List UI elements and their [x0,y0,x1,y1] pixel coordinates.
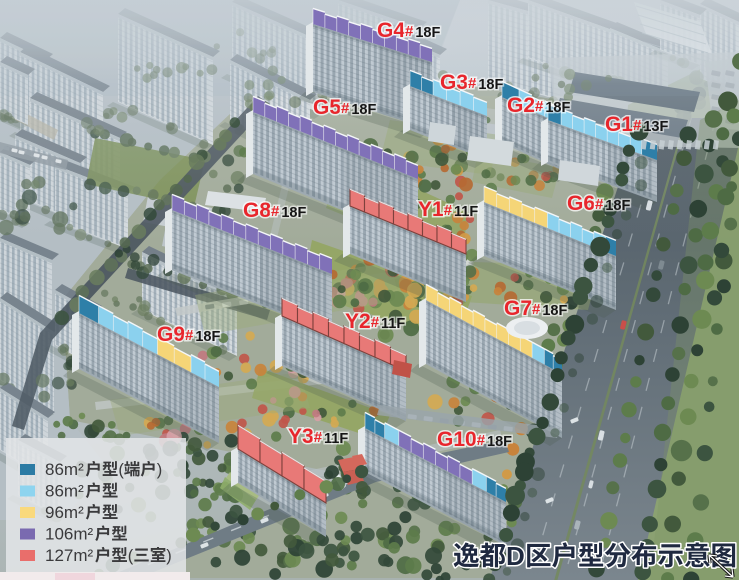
svg-text:127m²: 127m² [45,546,94,565]
svg-text:(: ( [118,461,124,479]
svg-text:): ) [157,461,163,479]
svg-text:86m²: 86m² [45,482,84,501]
svg-text:86m²: 86m² [45,460,84,479]
svg-text:D: D [506,541,525,571]
svg-text:106m²: 106m² [45,525,94,544]
svg-text:): ) [166,547,172,565]
svg-text:96m²: 96m² [45,503,84,522]
svg-text:(: ( [128,547,134,565]
